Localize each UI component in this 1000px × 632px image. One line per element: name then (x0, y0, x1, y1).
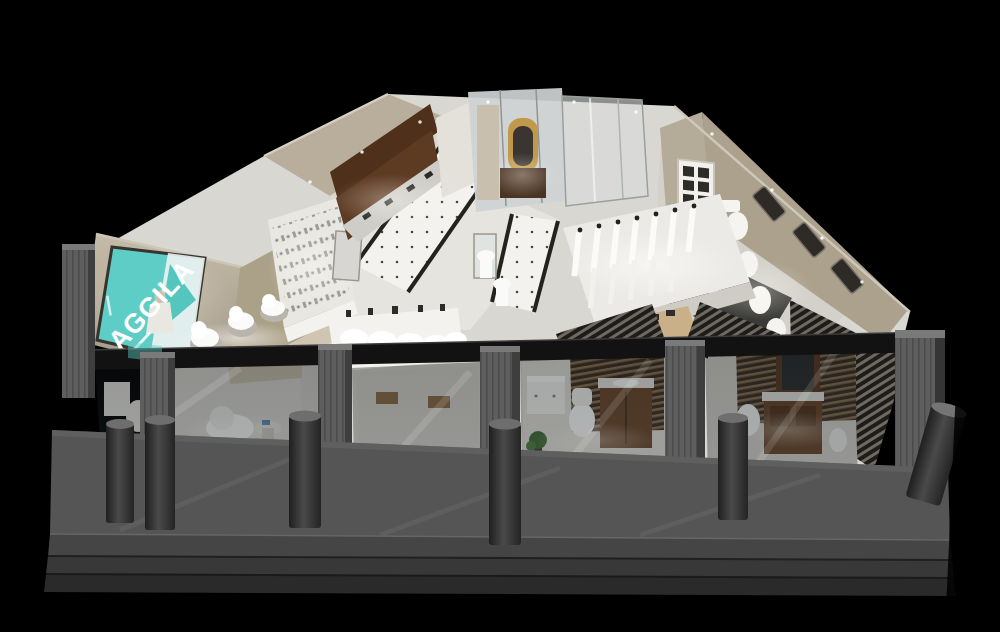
storefront-pillar (665, 340, 705, 472)
storefront-pillar (62, 244, 95, 398)
bollard (145, 415, 175, 530)
beige-column (477, 105, 499, 200)
bollard (106, 419, 134, 523)
bollard (718, 413, 748, 520)
bollard (289, 411, 321, 529)
showroom-render: AGGILA (0, 0, 1000, 632)
bollard (489, 419, 521, 546)
